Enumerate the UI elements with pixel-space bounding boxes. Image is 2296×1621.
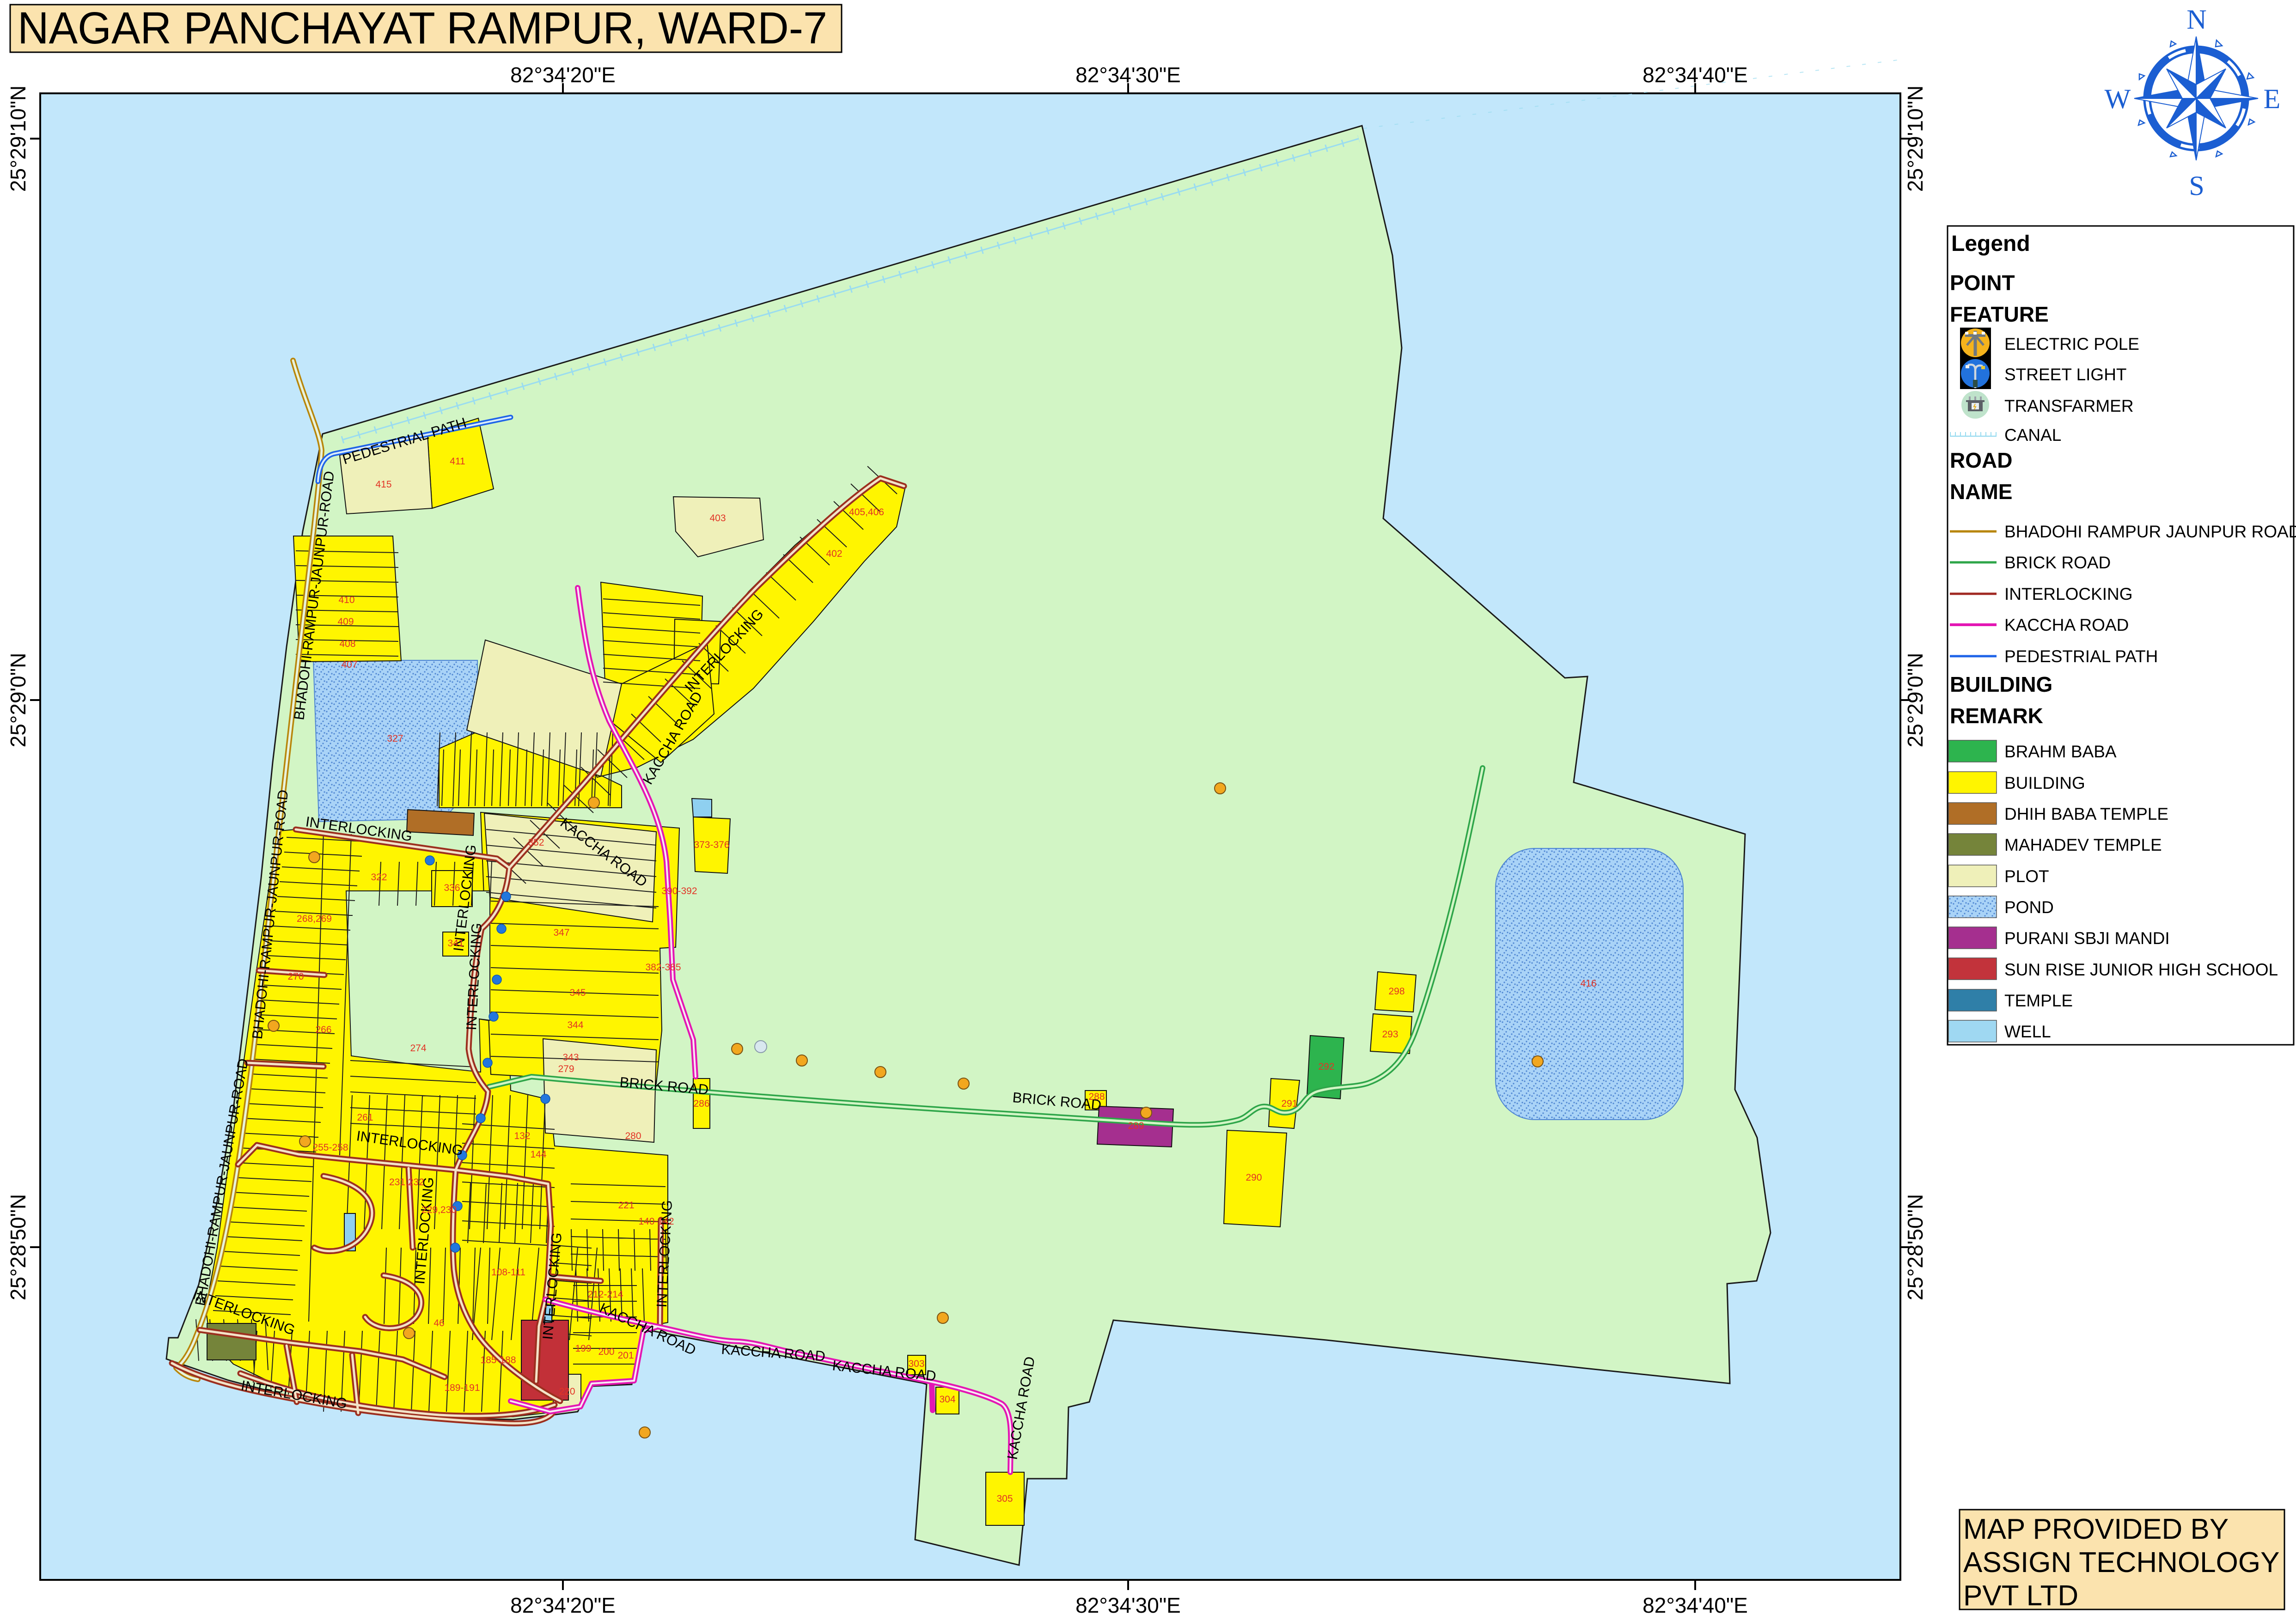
- svg-text:344: 344: [567, 1020, 583, 1030]
- svg-text:82°34'20"E: 82°34'20"E: [510, 63, 616, 87]
- svg-text:SUN RISE JUNIOR HIGH SCHOOL: SUN RISE JUNIOR HIGH SCHOOL: [2004, 960, 2278, 979]
- svg-text:46: 46: [434, 1318, 444, 1328]
- svg-text:270: 270: [287, 971, 304, 982]
- svg-text:266: 266: [315, 1024, 331, 1035]
- svg-text:411: 411: [450, 456, 465, 467]
- svg-text:199: 199: [575, 1343, 591, 1354]
- svg-text:BRICK ROAD: BRICK ROAD: [2004, 553, 2111, 572]
- svg-text:25°29'10"N: 25°29'10"N: [6, 85, 30, 192]
- svg-text:MAHADEV TEMPLE: MAHADEV TEMPLE: [2004, 835, 2162, 854]
- svg-text:212-214: 212-214: [587, 1289, 623, 1300]
- svg-text:PLOT: PLOT: [2004, 867, 2049, 886]
- svg-text:255-258: 255-258: [312, 1142, 348, 1153]
- svg-text:ELECTRIC POLE: ELECTRIC POLE: [2004, 335, 2139, 353]
- svg-text:DHIH BABA TEMPLE: DHIH BABA TEMPLE: [2004, 804, 2168, 823]
- svg-text:408: 408: [339, 639, 355, 649]
- svg-text:W: W: [2105, 84, 2131, 114]
- svg-text:STREET LIGHT: STREET LIGHT: [2004, 365, 2127, 384]
- svg-text:PEDESTRIAL PATH: PEDESTRIAL PATH: [2004, 647, 2158, 666]
- svg-text:322: 322: [371, 872, 387, 883]
- svg-text:PURANI SBJI MANDI: PURANI SBJI MANDI: [2004, 929, 2170, 948]
- svg-text:CANAL: CANAL: [2004, 426, 2061, 445]
- svg-text:291: 291: [1281, 1098, 1297, 1109]
- svg-text:274: 274: [410, 1043, 426, 1054]
- svg-text:NAGAR PANCHAYAT RAMPUR, WARD-7: NAGAR PANCHAYAT RAMPUR, WARD-7: [18, 3, 827, 53]
- svg-text:ASSIGN TECHNOLOGY: ASSIGN TECHNOLOGY: [1963, 1547, 2279, 1578]
- svg-text:25°28'50"N: 25°28'50"N: [6, 1194, 30, 1300]
- svg-text:82°34'30"E: 82°34'30"E: [1075, 1593, 1181, 1617]
- svg-text:INTERLOCKING: INTERLOCKING: [2004, 585, 2133, 603]
- svg-text:347: 347: [553, 927, 569, 938]
- svg-text:140-142: 140-142: [638, 1216, 674, 1227]
- svg-text:201: 201: [617, 1350, 634, 1361]
- svg-text:261: 261: [357, 1112, 373, 1123]
- svg-text:KACCHA ROAD: KACCHA ROAD: [2004, 615, 2129, 634]
- svg-text:304: 304: [939, 1394, 955, 1405]
- svg-text:280: 280: [625, 1131, 641, 1141]
- svg-text:25°29'0"N: 25°29'0"N: [6, 653, 30, 748]
- svg-text:382-385: 382-385: [645, 962, 681, 973]
- svg-text:390-392: 390-392: [661, 886, 697, 896]
- svg-text:352: 352: [528, 837, 544, 848]
- svg-text:327: 327: [387, 733, 403, 744]
- svg-text:NAME: NAME: [1950, 480, 2012, 504]
- svg-text:BRAHM BABA: BRAHM BABA: [2004, 742, 2117, 761]
- svg-text:341: 341: [447, 938, 464, 949]
- svg-text:405,406: 405,406: [849, 507, 884, 518]
- svg-text:25°29'0"N: 25°29'0"N: [1903, 653, 1927, 748]
- svg-text:132: 132: [514, 1131, 530, 1141]
- svg-text:WELL: WELL: [2004, 1022, 2051, 1041]
- svg-text:402: 402: [826, 548, 842, 559]
- svg-text:S: S: [2189, 171, 2204, 201]
- svg-text:BUILDING: BUILDING: [2004, 774, 2085, 792]
- svg-text:108-111: 108-111: [491, 1267, 525, 1278]
- svg-text:220: 220: [559, 1386, 575, 1397]
- svg-text:336: 336: [444, 883, 460, 893]
- svg-text:25°29'10"N: 25°29'10"N: [1903, 85, 1927, 192]
- svg-text:144: 144: [530, 1149, 546, 1160]
- svg-text:415: 415: [375, 479, 391, 490]
- svg-text:TEMPLE: TEMPLE: [2004, 991, 2073, 1010]
- svg-text:403: 403: [709, 513, 726, 524]
- svg-text:286: 286: [693, 1098, 709, 1109]
- svg-text:REMARK: REMARK: [1950, 704, 2043, 728]
- svg-text:82°34'30"E: 82°34'30"E: [1075, 63, 1181, 87]
- svg-text:E: E: [2264, 84, 2281, 114]
- svg-text:82°34'20"E: 82°34'20"E: [510, 1593, 616, 1617]
- svg-text:N: N: [2186, 4, 2206, 35]
- svg-text:82°34'40"E: 82°34'40"E: [1643, 63, 1748, 87]
- svg-text:305: 305: [996, 1493, 1013, 1504]
- svg-text:345: 345: [569, 987, 586, 998]
- svg-text:POINT: POINT: [1950, 271, 2015, 295]
- svg-text:343: 343: [562, 1052, 579, 1063]
- svg-text:407: 407: [341, 659, 357, 670]
- svg-text:293: 293: [1382, 1029, 1398, 1040]
- svg-text:POND: POND: [2004, 898, 2054, 917]
- svg-text:279: 279: [558, 1064, 574, 1074]
- svg-text:409: 409: [337, 616, 354, 627]
- svg-text:290: 290: [1246, 1172, 1262, 1183]
- svg-text:FEATURE: FEATURE: [1950, 302, 2049, 326]
- svg-text:189-191: 189-191: [444, 1383, 480, 1393]
- svg-text:25°28'50"N: 25°28'50"N: [1903, 1194, 1927, 1300]
- svg-text:MAP PROVIDED BY: MAP PROVIDED BY: [1963, 1513, 2229, 1545]
- svg-text:221: 221: [618, 1200, 634, 1211]
- svg-text:288: 288: [1088, 1091, 1105, 1102]
- svg-text:292: 292: [1318, 1061, 1334, 1072]
- svg-text:200: 200: [598, 1347, 614, 1357]
- svg-text:ROAD: ROAD: [1950, 448, 2012, 472]
- svg-text:Legend: Legend: [1951, 232, 2030, 256]
- svg-text:268,269: 268,269: [297, 914, 332, 924]
- svg-text:229,230: 229,230: [421, 1205, 457, 1215]
- svg-text:PVT LTD: PVT LTD: [1963, 1580, 2078, 1612]
- svg-text:289: 289: [1128, 1121, 1144, 1131]
- svg-text:185-188: 185-188: [480, 1355, 516, 1365]
- svg-text:82°34'40"E: 82°34'40"E: [1643, 1593, 1748, 1617]
- svg-text:BUILDING: BUILDING: [1950, 672, 2052, 696]
- svg-text:TRANSFARMER: TRANSFARMER: [2004, 396, 2134, 415]
- svg-text:373-376: 373-376: [694, 840, 729, 850]
- svg-text:416: 416: [1580, 978, 1596, 989]
- svg-text:303: 303: [908, 1359, 924, 1369]
- svg-text:BHADOHI RAMPUR JAUNPUR ROAD: BHADOHI RAMPUR JAUNPUR ROAD: [2004, 522, 2296, 541]
- svg-text:231,232: 231,232: [389, 1177, 424, 1188]
- svg-text:298: 298: [1388, 986, 1404, 997]
- svg-text:410: 410: [338, 595, 354, 605]
